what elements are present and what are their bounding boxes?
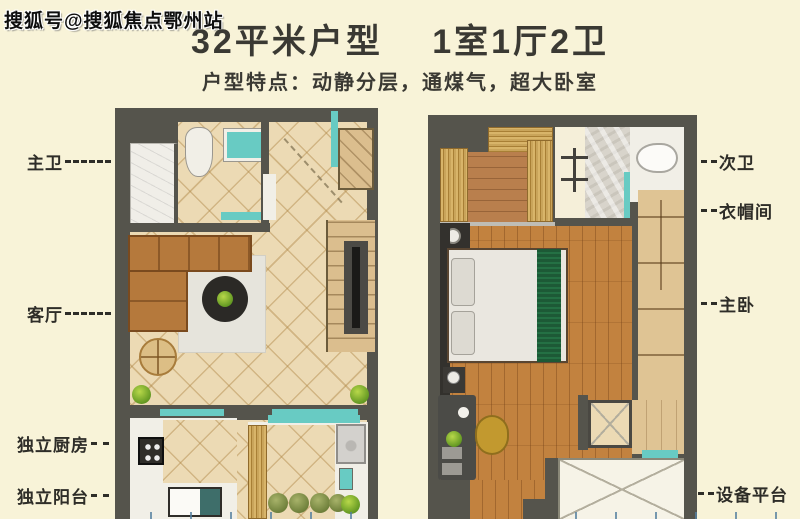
- plant: [132, 385, 151, 404]
- kitchen-stove: [138, 437, 164, 465]
- label-master-bathroom: 主卫: [27, 149, 113, 174]
- dimension-tick: [655, 512, 657, 519]
- pillow: [451, 258, 475, 306]
- label-living-room: 客厅: [27, 301, 113, 326]
- page-title: 32平米户型 1室1厅2卫: [0, 14, 800, 63]
- wall: [578, 395, 588, 450]
- page-subtitle: 户型特点：动静分层，通煤气，超大卧室: [0, 66, 800, 95]
- dimension-tick: [270, 512, 272, 519]
- dimension-tick: [190, 512, 192, 519]
- platform-window: [642, 450, 678, 458]
- desk-drawer: [442, 463, 462, 475]
- lower-floor-plan: [115, 108, 378, 519]
- balcony-shelf: [248, 425, 267, 519]
- bathroom-window: [221, 212, 265, 220]
- label-text: 衣帽间: [719, 198, 773, 223]
- desk-drawer: [442, 447, 462, 459]
- wardrobe: [527, 140, 553, 222]
- tv-screen: [352, 247, 360, 328]
- potted-plant: [310, 493, 330, 513]
- leader-line: [65, 312, 111, 315]
- light-well-shaft: [588, 400, 632, 448]
- label-text: 独立阳台: [17, 483, 89, 508]
- washing-machine: [336, 424, 366, 464]
- wall: [545, 458, 558, 519]
- bathroom-sink: [561, 148, 588, 192]
- equipment-platform: [558, 458, 684, 519]
- balcony-window: [268, 415, 360, 423]
- desk-chair: [475, 415, 509, 455]
- leader-line: [91, 494, 109, 497]
- dimension-tick: [615, 512, 617, 519]
- dimension-tick: [230, 512, 232, 519]
- dimension-tick: [775, 512, 777, 519]
- label-walk-in-closet: 衣帽间: [689, 198, 773, 223]
- label-second-bathroom: 次卫: [689, 149, 755, 174]
- label-text: 次卫: [719, 149, 755, 174]
- toilet: [185, 127, 213, 177]
- hall-window: [331, 111, 338, 167]
- dimension-tick: [310, 512, 312, 519]
- label-kitchen: 独立厨房: [17, 431, 111, 456]
- dimension-tick: [735, 512, 737, 519]
- bathroom-door: [263, 174, 276, 220]
- dimension-tick: [350, 512, 352, 519]
- potted-plant: [268, 493, 288, 513]
- upper-floor-plan: [428, 115, 697, 519]
- desk-plant: [446, 431, 462, 447]
- wall: [523, 499, 546, 519]
- dining-table: [139, 338, 177, 376]
- toilet: [636, 143, 678, 173]
- label-master-bedroom: 主卧: [689, 291, 755, 316]
- potted-plant: [289, 493, 309, 513]
- label-text: 主卧: [719, 291, 755, 316]
- label-text: 客厅: [27, 301, 63, 326]
- blanket-runner: [537, 249, 561, 362]
- shower-area: [130, 143, 178, 231]
- kitchen-floor: [163, 420, 237, 483]
- dimension-tick: [695, 512, 697, 519]
- kitchen-appliance: [200, 489, 220, 515]
- floor-plan-page: 搜狐号@搜狐焦点鄂州站 32平米户型 1室1厅2卫 户型特点：动静分层，通煤气，…: [0, 0, 800, 519]
- bathtub-water: [227, 132, 261, 158]
- balcony-sink: [339, 468, 353, 490]
- leader-line: [65, 160, 111, 163]
- wardrobe: [440, 148, 468, 222]
- wall: [130, 223, 270, 232]
- label-text: 独立厨房: [17, 431, 89, 456]
- label-text: 设备平台: [716, 481, 788, 506]
- stairs-upper: [338, 128, 374, 190]
- label-text: 主卫: [27, 149, 63, 174]
- table-plant: [217, 291, 233, 307]
- desk-item: [458, 407, 469, 418]
- hall-floor: [632, 400, 684, 454]
- wall: [130, 122, 178, 145]
- dimension-tick: [575, 512, 577, 519]
- closet-floor: [468, 152, 527, 222]
- label-equipment-platform: 设备平台: [686, 481, 788, 506]
- label-balcony: 独立阳台: [17, 483, 111, 508]
- pillow: [451, 311, 475, 355]
- dimension-tick: [150, 512, 152, 519]
- closet-divider: [660, 200, 662, 290]
- leader-line: [91, 442, 109, 445]
- plant: [350, 385, 369, 404]
- sofa: [128, 235, 252, 272]
- wall: [440, 480, 470, 519]
- nightstand-plant: [447, 371, 460, 384]
- kitchen-window: [160, 409, 224, 416]
